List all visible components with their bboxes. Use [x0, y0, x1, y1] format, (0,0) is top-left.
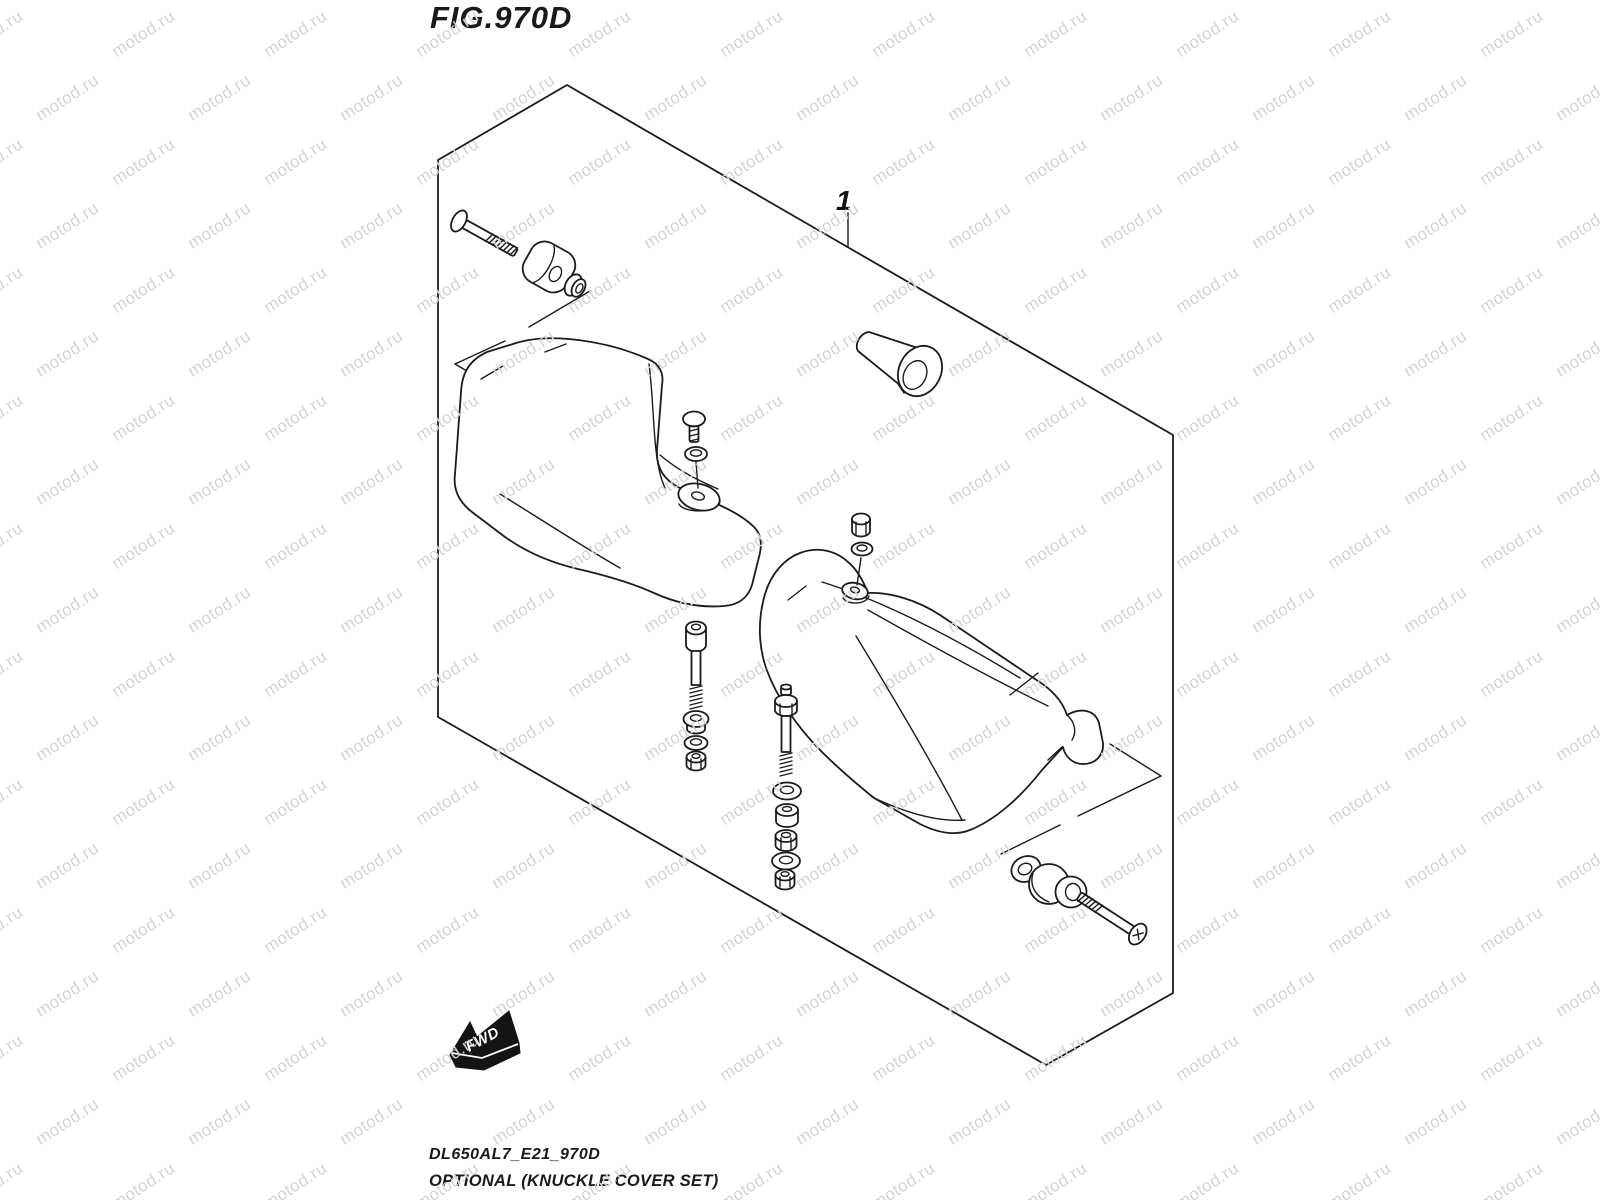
figure-footer: DL650AL7_E21_970D OPTIONAL (KNUCKLE COVE… [429, 1146, 719, 1191]
exploded-parts-diagram: 1 [0, 0, 1600, 1200]
mount-assembly-right [1007, 851, 1150, 948]
cover-screw-left [683, 412, 707, 489]
part-number-label: 1 [836, 185, 852, 216]
part-callout-1: 1 [836, 185, 852, 247]
figure-description: OPTIONAL (KNUCKLE COVER SET) [429, 1172, 719, 1191]
fwd-direction-badge: FWD [450, 1011, 520, 1070]
mount-screw-right [1073, 886, 1151, 947]
figure-title: FIG.970D [430, 0, 572, 36]
hardware-column-a [684, 622, 709, 771]
left-knuckle-cover [455, 338, 761, 606]
model-code: DL650AL7_E21_970D [429, 1146, 719, 1164]
mount-screw-left [448, 208, 522, 263]
parts-catalog-page: FIG.970D 1 [0, 0, 1600, 1200]
cone-grommet [857, 332, 951, 404]
right-knuckle-cover [760, 550, 1103, 833]
